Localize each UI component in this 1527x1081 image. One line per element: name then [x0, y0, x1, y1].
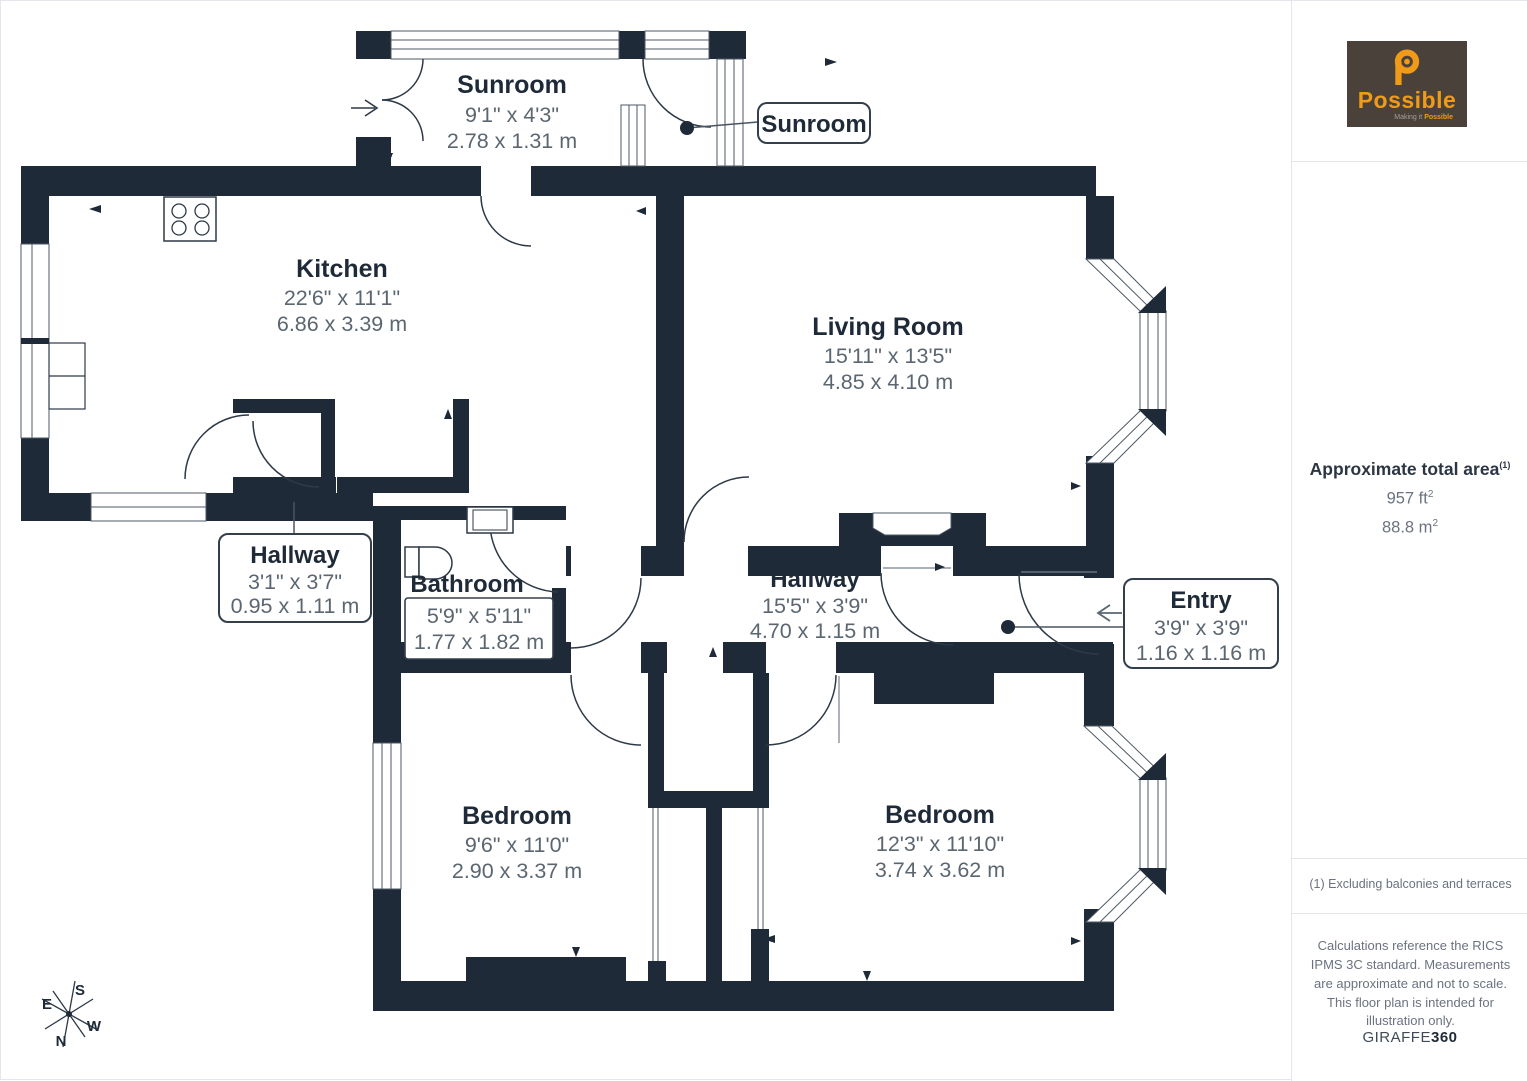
possible-wordmark: Possible — [1358, 89, 1457, 112]
bathroom-imperial: 5'9" x 5'11" — [427, 604, 531, 628]
sidebar-divider-1 — [1292, 161, 1527, 162]
sink-icon — [467, 507, 513, 533]
kitchen-metric: 6.86 x 3.39 m — [277, 312, 407, 336]
entry-callout-imperial: 3'9" x 3'9" — [1154, 616, 1248, 640]
total-area-title: Approximate total area(1) — [1292, 459, 1527, 480]
kitchen-name: Kitchen — [296, 255, 388, 283]
bedroom-left-metric: 2.90 x 3.37 m — [452, 859, 582, 883]
hallway-callout-name: Hallway — [250, 542, 340, 569]
compass-icon: S E W N — [42, 981, 102, 1050]
sunroom-imperial: 9'1" x 4'3" — [465, 103, 559, 127]
giraffe-suffix: 360 — [1431, 1029, 1458, 1046]
bedroom-right-metric: 3.74 x 3.62 m — [875, 858, 1005, 882]
windows — [21, 31, 1166, 922]
compass-north-label: N — [56, 1033, 67, 1050]
bedroom-right-name: Bedroom — [885, 801, 995, 829]
kitchen-unit-icon — [49, 343, 85, 409]
room-hallway-main: Hallway 15'5" x 3'9" 4.70 x 1.15 m — [750, 566, 880, 643]
sidebar-divider-3 — [1292, 913, 1527, 914]
fireplace — [873, 513, 951, 535]
room-bedroom-left: Bedroom 9'6" x 11'0" 2.90 x 3.37 m — [452, 802, 582, 883]
bedroom-left-name: Bedroom — [462, 802, 572, 830]
living-room-name: Living Room — [812, 313, 963, 341]
possible-logo: Possible Making it Possible — [1347, 41, 1467, 127]
hallway-imperial: 15'5" x 3'9" — [762, 594, 868, 618]
giraffe360-brand: GIRAFFE360 — [1292, 1029, 1527, 1046]
sunroom-entrance-arrow-icon — [351, 100, 377, 116]
total-area-block: Approximate total area(1) 957 ft2 88.8 m… — [1292, 459, 1527, 537]
total-area-title-text: Approximate total area — [1310, 459, 1500, 479]
room-bathroom: Bathroom 5'9" x 5'11" 1.77 x 1.82 m — [405, 571, 553, 659]
total-area-footnote-marker: (1) — [1499, 460, 1510, 470]
floorplan-page: Sunroom Hallway 3'1" x 3'7" 0.95 x 1.11 … — [0, 0, 1527, 1080]
room-living-room: Living Room 15'11" x 13'5" 4.85 x 4.10 m — [812, 313, 963, 394]
bathroom-metric: 1.77 x 1.82 m — [414, 630, 544, 654]
stove-icon — [164, 197, 216, 241]
hallway-metric: 4.70 x 1.15 m — [750, 619, 880, 643]
entry-callout-name: Entry — [1170, 587, 1232, 614]
fixtures — [49, 197, 513, 579]
compass-east-label: E — [42, 996, 52, 1013]
kitchen-imperial: 22'6" x 11'1" — [284, 286, 400, 310]
tagline-prefix: Making it — [1394, 114, 1422, 121]
entry-callout-metric: 1.16 x 1.16 m — [1136, 641, 1266, 665]
room-bedroom-right: Bedroom 12'3" x 11'10" 3.74 x 3.62 m — [875, 801, 1005, 882]
giraffe-prefix: GIRAFFE — [1362, 1029, 1431, 1046]
room-sunroom: Sunroom 9'1" x 4'3" 2.78 x 1.31 m — [447, 71, 577, 153]
living-room-imperial: 15'11" x 13'5" — [824, 344, 952, 368]
room-kitchen: Kitchen 22'6" x 11'1" 6.86 x 3.39 m — [277, 255, 407, 336]
bedroom-right-imperial: 12'3" x 11'10" — [876, 832, 1004, 856]
floor-plan-svg: Sunroom Hallway 3'1" x 3'7" 0.95 x 1.11 … — [1, 1, 1291, 1081]
compass-south-label: S — [75, 982, 85, 999]
bathroom-name: Bathroom — [410, 571, 523, 598]
sunroom-metric: 2.78 x 1.31 m — [447, 129, 577, 153]
sidebar-divider-2 — [1292, 858, 1527, 859]
compass-west-label: W — [87, 1018, 102, 1035]
sunroom-name: Sunroom — [457, 71, 567, 99]
area-footnote: (1) Excluding balconies and terraces — [1302, 877, 1519, 891]
entry-arrow-icon — [1098, 605, 1122, 621]
disclaimer-text: Calculations reference the RICS IPMS 3C … — [1310, 937, 1511, 1031]
hallway-callout-imperial: 3'1" x 3'7" — [248, 570, 342, 594]
living-room-metric: 4.85 x 4.10 m — [823, 370, 953, 394]
hallway-name: Hallway — [770, 566, 860, 593]
tagline-bold: Possible — [1424, 114, 1453, 121]
floor-plan: Sunroom Hallway 3'1" x 3'7" 0.95 x 1.11 … — [1, 1, 1291, 1081]
bedroom-left-imperial: 9'6" x 11'0" — [465, 833, 569, 857]
possible-logo-icon — [1389, 47, 1425, 87]
total-area-m: 88.8 m2 — [1292, 518, 1527, 538]
info-sidebar: Possible Making it Possible Approximate … — [1291, 1, 1527, 1081]
hallway-callout-metric: 0.95 x 1.11 m — [231, 594, 360, 618]
total-area-ft: 957 ft2 — [1292, 489, 1527, 509]
sunroom-callout-label: Sunroom — [761, 111, 866, 138]
possible-tagline: Making it Possible — [1394, 114, 1453, 121]
